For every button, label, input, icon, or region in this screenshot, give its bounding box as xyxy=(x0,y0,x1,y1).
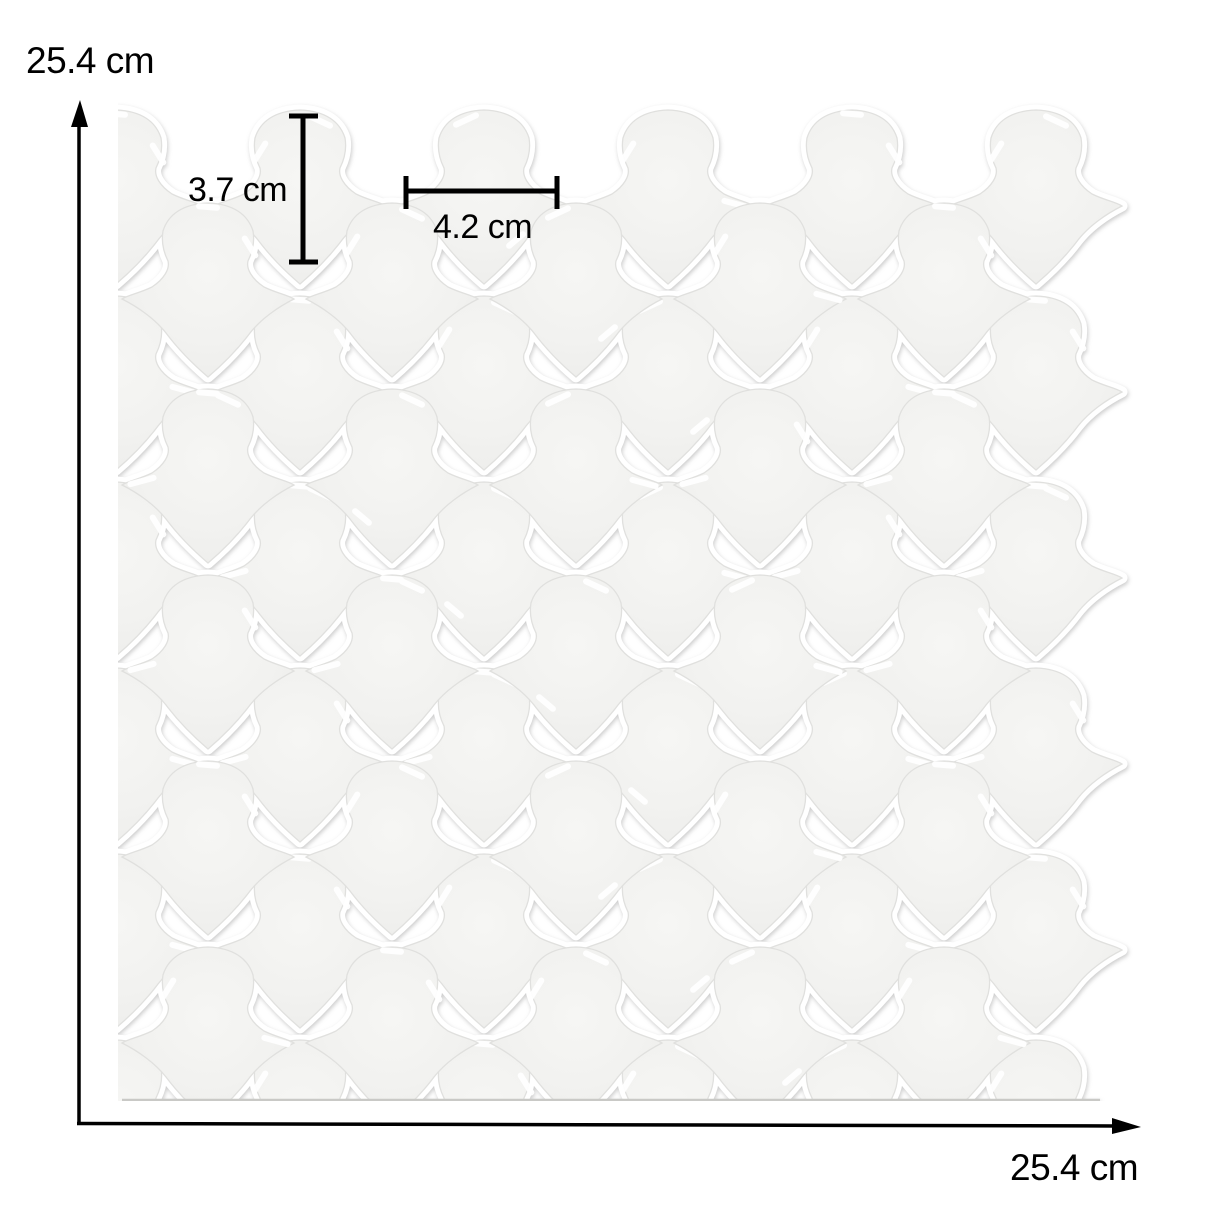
tile-gloss-highlight xyxy=(935,392,953,394)
product-dimension-image: 25.4 cm 3.7 cm 4.2 cm 25.4 cm xyxy=(0,0,1214,1214)
tile-gloss-highlight xyxy=(935,764,953,766)
sheet-height-label: 25.4 cm xyxy=(26,42,154,79)
tile-gloss-highlight xyxy=(935,206,953,208)
tile-sheet-scene xyxy=(0,0,1214,1214)
tile-height-label: 3.7 cm xyxy=(188,173,287,207)
tile-gloss-highlight xyxy=(199,392,217,394)
tile-gloss-highlight xyxy=(356,1131,379,1137)
tile-sheet xyxy=(30,110,1122,1214)
tile-gloss-highlight xyxy=(38,571,61,577)
tile-gloss-highlight xyxy=(107,113,125,115)
tile-gloss-highlight xyxy=(383,950,401,952)
vertical-axis-arrow xyxy=(71,100,88,1123)
horizontal-axis-arrow xyxy=(77,1118,1141,1134)
tile-gloss-highlight xyxy=(199,764,217,766)
sheet-width-label: 25.4 cm xyxy=(1010,1149,1138,1186)
tile-gloss-highlight xyxy=(843,113,861,115)
tile-gloss-highlight xyxy=(383,578,401,580)
tile-width-label: 4.2 cm xyxy=(433,210,532,244)
tile-gloss-highlight xyxy=(88,1045,108,1054)
tile-gloss-highlight xyxy=(877,1164,891,1176)
tile-gloss-highlight xyxy=(88,673,108,682)
tile-gloss-highlight xyxy=(141,1164,155,1176)
